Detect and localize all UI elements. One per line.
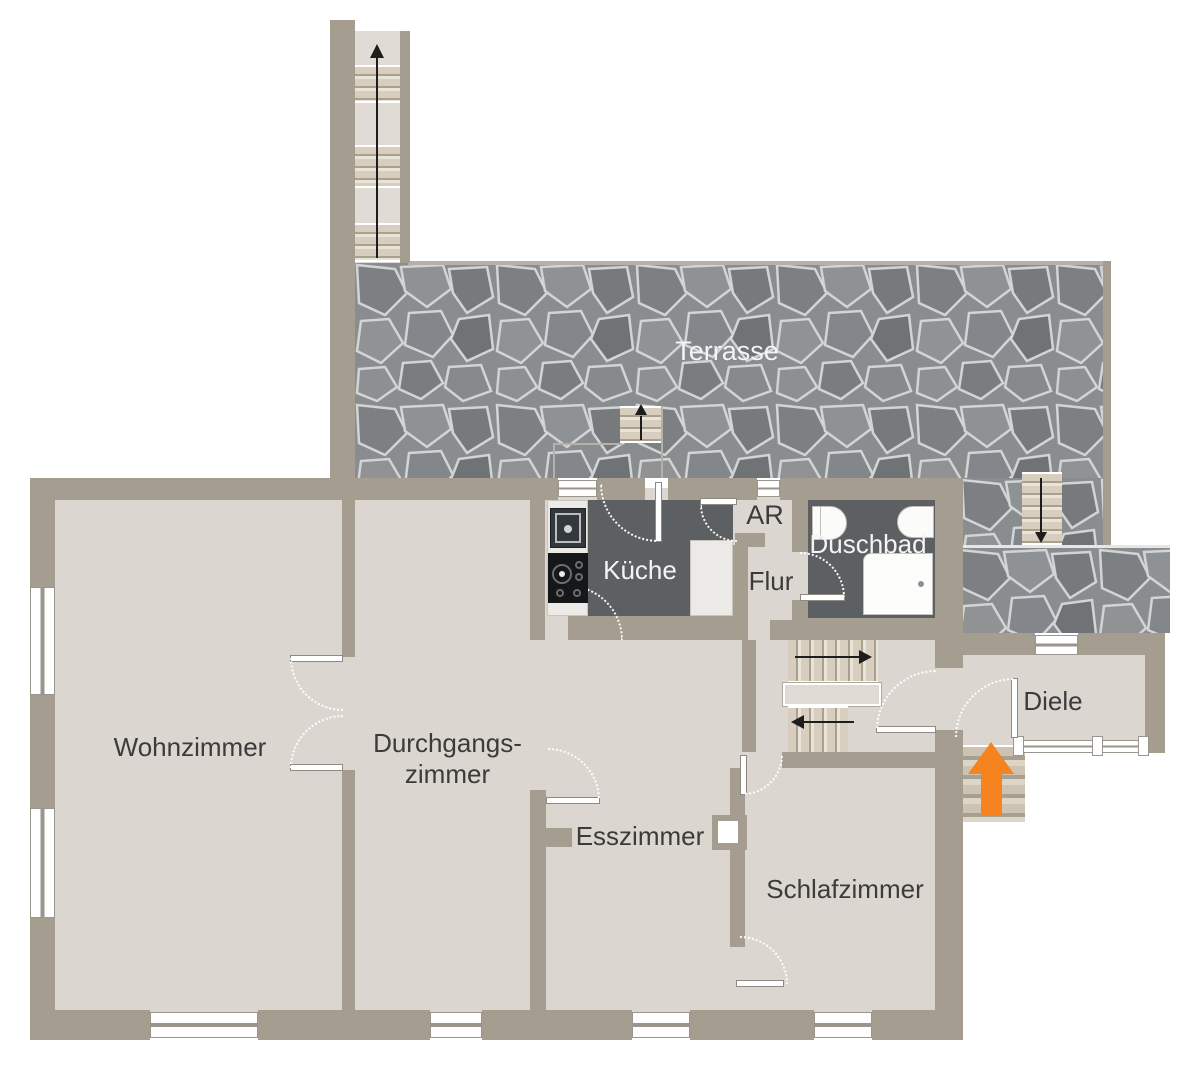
room-label-schlafzimmer: Schlafzimmer — [745, 874, 945, 905]
stairs-left-arrow-head — [791, 715, 804, 729]
room-label-duschbad: Duschbad — [790, 529, 946, 560]
window-diele-south — [1018, 740, 1148, 753]
window-left-lower — [30, 808, 55, 918]
burner-small — [556, 589, 564, 597]
room-label-kueche: Küche — [565, 555, 715, 586]
wall-stairs-west — [742, 640, 756, 752]
wall-bath-south — [808, 618, 935, 640]
terrace-upper-surface — [355, 263, 1103, 478]
room-label-terrasse: Terrasse — [627, 336, 827, 367]
stairs-up-arrow-line — [376, 58, 378, 258]
wall-diele-east — [1145, 633, 1165, 753]
window-bottom-schlafzimmer — [814, 1012, 872, 1038]
window-bottom-durchgangszimmer — [430, 1012, 482, 1038]
wall-left — [30, 695, 55, 808]
staircase-right-wall — [400, 31, 410, 263]
window-bottom-wohnzimmer — [150, 1012, 258, 1038]
entrance-arrow-shaft — [981, 772, 1002, 816]
terrace-railing — [661, 406, 663, 478]
terrace-level-seam — [960, 545, 1170, 548]
interior-stairs-landing — [783, 683, 881, 706]
window-post — [1092, 736, 1103, 756]
wall-schlafzimmer-north — [782, 752, 935, 768]
shower — [863, 553, 933, 615]
terrace-top-edge — [408, 261, 1110, 265]
window-top-ar — [757, 480, 780, 497]
stairs-left-arrow-line — [804, 721, 854, 723]
room-label-diele: Diele — [1003, 686, 1103, 717]
terrace-down-arrow-line — [1040, 478, 1042, 534]
wall-bottom — [258, 1010, 430, 1040]
window-post — [1013, 736, 1024, 756]
wall-top — [30, 478, 558, 500]
window-bottom-esszimmer — [632, 1012, 690, 1038]
terrace-railing — [553, 443, 555, 478]
wall-top — [780, 478, 963, 500]
stairs-up-arrow-head — [370, 44, 384, 58]
wall-ar-south — [735, 533, 765, 547]
entrance-door-terrace — [1035, 635, 1078, 655]
wall-top — [668, 478, 757, 500]
room-label-durchgangszimmer-line1: Durchgangs- — [330, 728, 565, 759]
room-label-flur: Flur — [735, 566, 807, 597]
shower-handle — [918, 581, 924, 587]
wall-flur-south — [770, 620, 808, 640]
wall-diele-north — [940, 633, 1035, 655]
window-top-kitchen — [558, 480, 597, 497]
terrace-right-wall — [1103, 261, 1111, 548]
wall-wohnzimmer-divider — [342, 770, 355, 1010]
terrace-down-arrow-head — [1035, 532, 1047, 543]
burner-small — [573, 589, 581, 597]
wall-kitchen-west — [530, 500, 545, 640]
entrance-arrow-head — [968, 742, 1014, 774]
room-label-ar: AR — [737, 500, 793, 531]
terrace-lower-surface — [958, 548, 1170, 633]
wall-bottom — [30, 1010, 150, 1040]
wall-bottom — [482, 1010, 632, 1040]
room-label-esszimmer: Esszimmer — [540, 821, 740, 852]
window-post — [1138, 736, 1149, 756]
room-label-wohnzimmer: Wohnzimmer — [60, 732, 320, 763]
window-left-upper — [30, 587, 55, 695]
interior-stairs-lower-flight — [788, 706, 848, 757]
staircase-left-wall — [330, 20, 355, 478]
kitchen-sink — [550, 508, 586, 548]
wall-wohnzimmer-divider — [342, 500, 355, 657]
floor-plan: Terrasse Küche AR Duschbad Flur Diele Wo… — [0, 0, 1199, 1080]
wall-left — [30, 500, 55, 587]
kitchen-stairs-arrow-head — [635, 404, 647, 415]
room-label-durchgangszimmer-line2: zimmer — [330, 759, 565, 790]
stairs-right-arrow-line — [795, 656, 861, 658]
door-leaf-kitchen-ar — [700, 498, 737, 505]
room-label-durchgangszimmer: Durchgangs- zimmer — [330, 728, 565, 790]
terrace-railing — [553, 443, 622, 445]
wall-bottom — [690, 1010, 814, 1040]
kitchen-stairs-arrow-line — [640, 416, 642, 440]
kitchen-sink-drain — [564, 525, 572, 533]
stairs-right-arrow-head — [859, 650, 872, 664]
